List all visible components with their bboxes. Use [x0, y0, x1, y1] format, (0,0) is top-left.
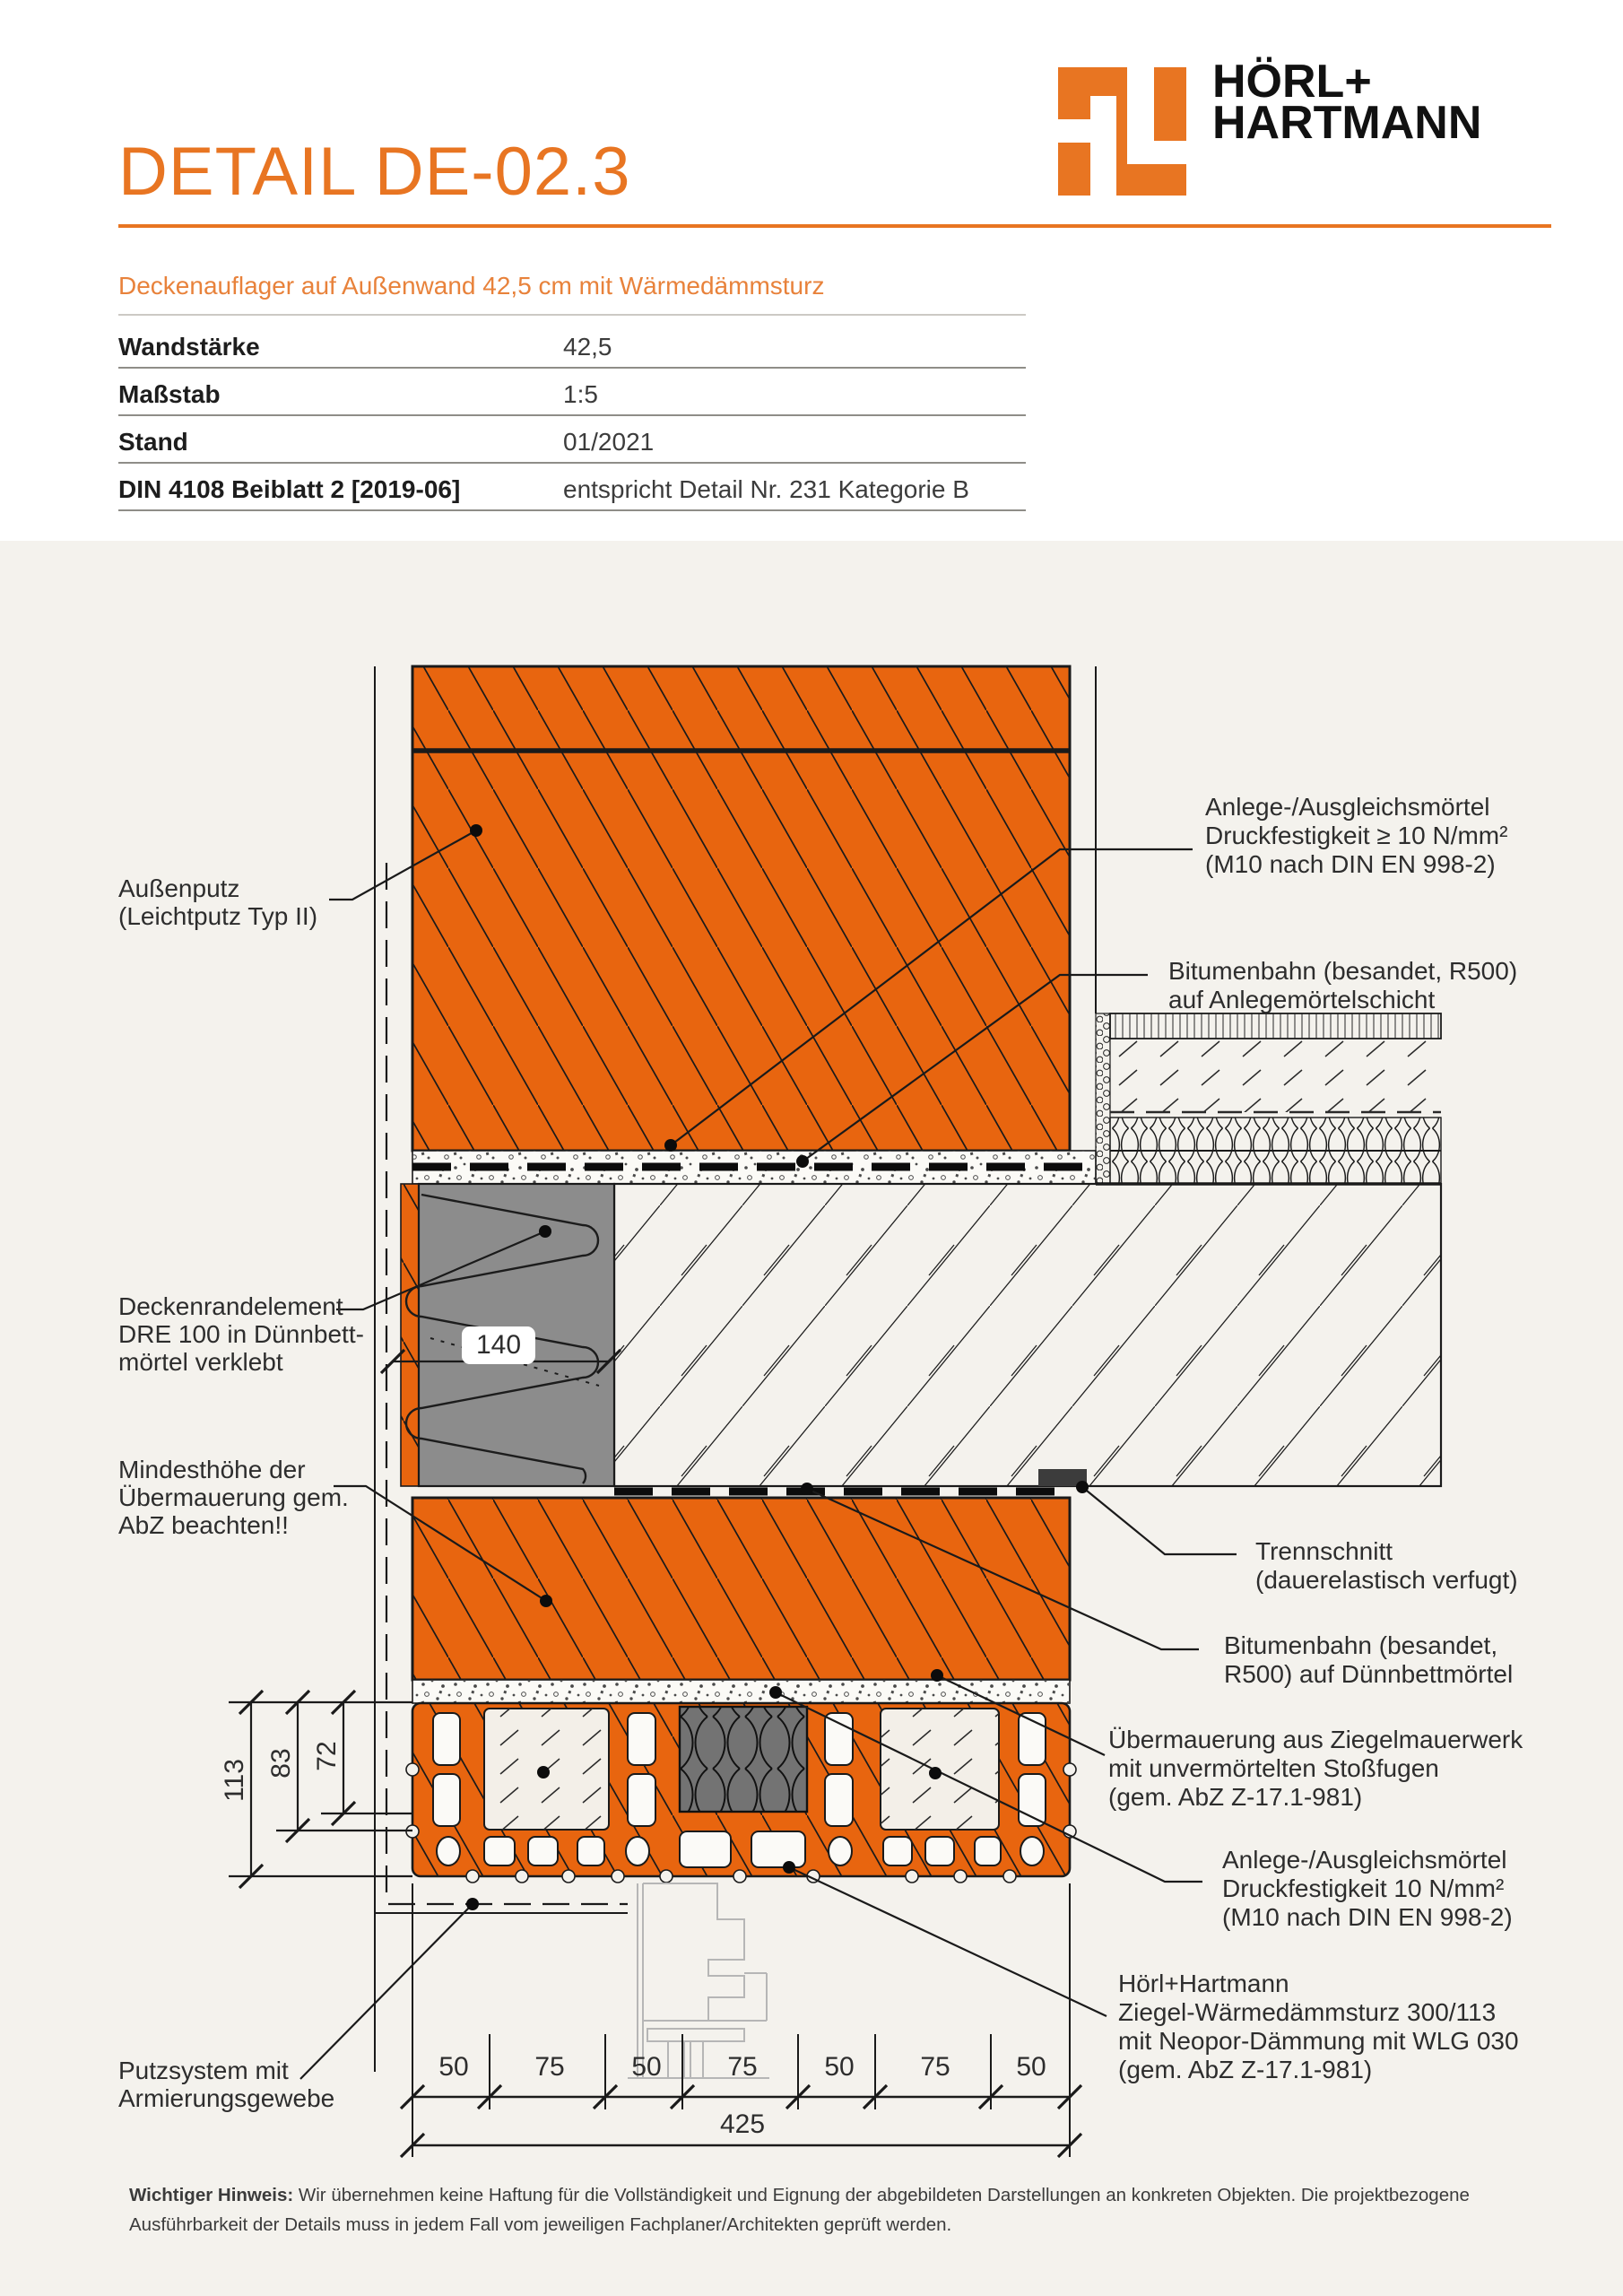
label-line: Armierungsgewebe [118, 2084, 334, 2112]
window-frame-profile [628, 1883, 769, 2078]
label-line: Trennschnitt [1255, 1537, 1518, 1566]
label-anlegemoertel-unten: Anlege-/Ausgleichsmörtel Druckfestigkeit… [1222, 1846, 1513, 1932]
label-uebermauerung: Übermauerung aus Ziegelmauerwerk mit unv… [1108, 1726, 1523, 1812]
label-line: Druckfestigkeit 10 N/mm² [1222, 1874, 1513, 1903]
thermal-lintel [406, 1703, 1076, 1883]
label-line: Bitumenbahn (besandet, [1224, 1631, 1513, 1660]
label-line: Bitumenbahn (besandet, R500) [1168, 957, 1517, 986]
label-line: Anlege-/Ausgleichsmörtel [1222, 1846, 1513, 1874]
dim-segment: 50 [1016, 2052, 1046, 2083]
label-trennschnitt: Trennschnitt (dauerelastisch verfugt) [1255, 1537, 1518, 1595]
concrete-floor-slab [614, 1184, 1441, 1486]
edge-insulation-strip [1096, 1013, 1110, 1184]
label-line: R500) auf Dünnbettmörtel [1224, 1660, 1513, 1689]
construction-detail-drawing [0, 0, 1623, 2296]
dim-total: 425 [720, 2109, 765, 2140]
dim-segment: 50 [438, 2052, 468, 2083]
floor-finish-layer [1110, 1013, 1441, 1039]
label-anlegemoertel-oben: Anlege-/Ausgleichsmörtel Druckfestigkeit… [1205, 793, 1507, 879]
dim-segment: 50 [824, 2052, 854, 2083]
disclaimer-bold: Wichtiger Hinweis: [129, 2185, 293, 2205]
label-line: (M10 nach DIN EN 998-2) [1205, 850, 1507, 879]
label-bitumenbahn-unten: Bitumenbahn (besandet, R500) auf Dünnbet… [1224, 1631, 1513, 1689]
label-line: Deckenrandelement [118, 1292, 364, 1320]
dim-value-83: 83 [266, 1748, 297, 1778]
label-line: mörtel verklebt [118, 1348, 364, 1376]
dim-segment: 50 [631, 2052, 661, 2083]
label-putzsystem: Putzsystem mit Armierungsgewebe [118, 2057, 334, 2112]
label-line: Außenputz [118, 874, 317, 902]
label-line: mit unvermörtelten Stoßfugen [1108, 1754, 1523, 1783]
label-waermedaemmsturz: Hörl+Hartmann Ziegel-Wärmedämmsturz 300/… [1118, 1970, 1519, 2084]
label-line: (Leichtputz Typ II) [118, 902, 317, 930]
label-line: Übermauerung aus Ziegelmauerwerk [1108, 1726, 1523, 1754]
label-line: (M10 nach DIN EN 998-2) [1222, 1903, 1513, 1932]
label-line: (gem. AbZ Z-17.1-981) [1118, 2056, 1519, 2084]
dim-value-140: 140 [462, 1326, 535, 1364]
dim-value-72: 72 [312, 1741, 343, 1770]
label-line: Mindesthöhe der [118, 1456, 349, 1483]
label-aussenputz: Außenputz (Leichtputz Typ II) [118, 874, 317, 930]
dim-segment: 75 [727, 2052, 757, 2083]
label-line: (dauerelastisch verfugt) [1255, 1566, 1518, 1595]
disclaimer-line2: Ausführbarkeit der Details muss in jedem… [129, 2214, 951, 2235]
label-line: AbZ beachten!! [118, 1511, 349, 1539]
label-line: Druckfestigkeit ≥ 10 N/mm² [1205, 822, 1507, 850]
dim-value-113: 113 [220, 1759, 250, 1802]
dim-segment: 75 [534, 2052, 564, 2083]
label-bitumenbahn-oben: Bitumenbahn (besandet, R500) auf Anlegem… [1168, 957, 1517, 1014]
label-deckenrandelement: Deckenrandelement DRE 100 in Dünnbett- m… [118, 1292, 364, 1376]
label-mindesthoehe: Mindesthöhe der Übermauerung gem. AbZ be… [118, 1456, 349, 1539]
label-line: mit Neopor-Dämmung mit WLG 030 [1118, 2027, 1519, 2056]
label-line: Hörl+Hartmann [1118, 1970, 1519, 1998]
detail-sheet: { "header": { "title": "DETAIL DE-02.3",… [0, 0, 1623, 2296]
label-line: Putzsystem mit [118, 2057, 334, 2084]
disclaimer-note: Wichtiger Hinweis: Wir übernehmen keine … [129, 2181, 1546, 2239]
disclaimer-line1: Wir übernehmen keine Haftung für die Vol… [293, 2185, 1470, 2205]
label-line: DRE 100 in Dünnbett- [118, 1320, 364, 1348]
label-line: Übermauerung gem. [118, 1483, 349, 1511]
label-line: Anlege-/Ausgleichsmörtel [1205, 793, 1507, 822]
dim-segment: 75 [920, 2052, 950, 2083]
label-line: auf Anlegemörtelschicht [1168, 986, 1517, 1014]
dim-left-chain [229, 1702, 412, 1876]
label-line: (gem. AbZ Z-17.1-981) [1108, 1783, 1523, 1812]
screed-layer [1110, 1039, 1441, 1112]
label-line: Ziegel-Wärmedämmsturz 300/113 [1118, 1998, 1519, 2027]
